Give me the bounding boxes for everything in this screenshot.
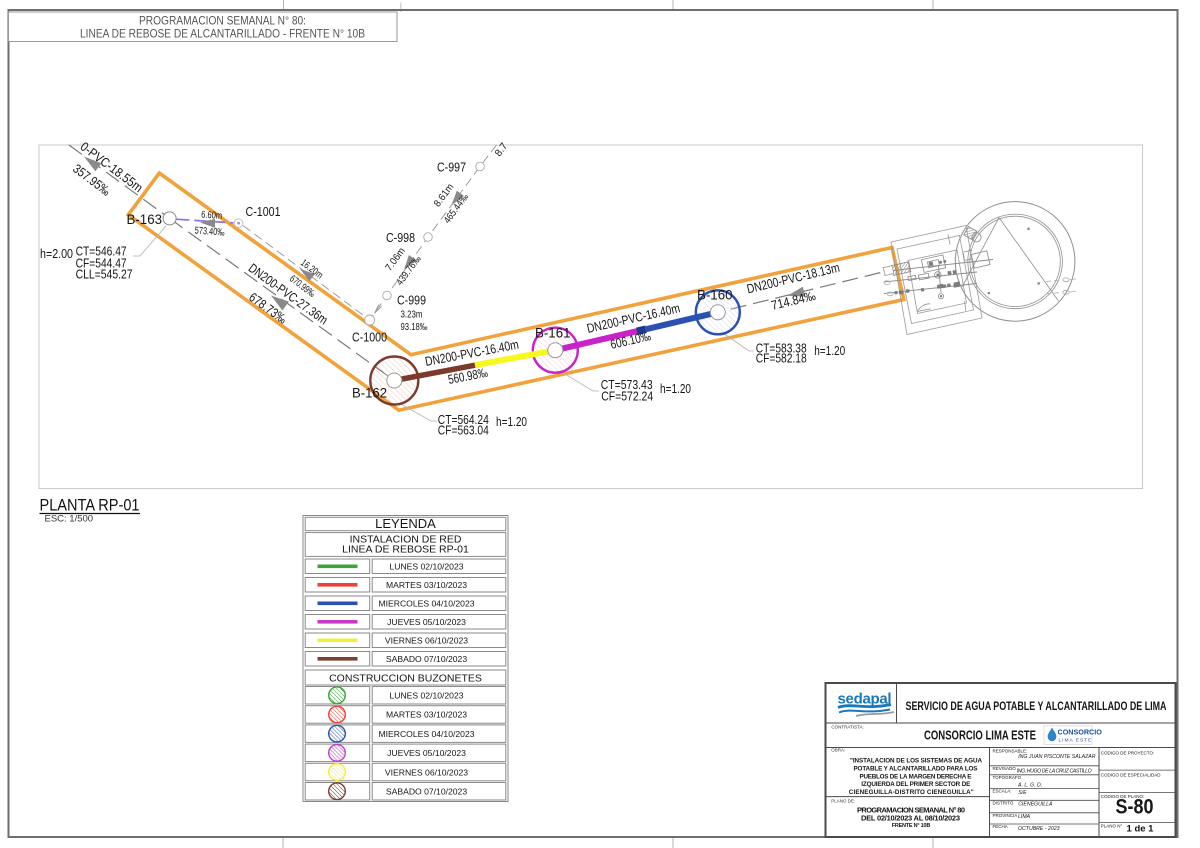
svg-text:93.18‰: 93.18‰ — [401, 322, 428, 333]
svg-text:LIMA: LIMA — [1018, 814, 1031, 820]
svg-text:ING JUAN PISCONTE SALAZAR: ING JUAN PISCONTE SALAZAR — [1018, 754, 1096, 760]
svg-text:IZQUIERDA DEL PRIMER SECTOR DE: IZQUIERDA DEL PRIMER SECTOR DE — [861, 781, 970, 788]
svg-text:LEYENDA: LEYENDA — [375, 516, 436, 531]
svg-text:CF=572.24: CF=572.24 — [601, 388, 653, 403]
svg-text:TOPOGRAFO: TOPOGRAFO — [993, 775, 1022, 780]
svg-text:CONSORCIO LIMA ESTE: CONSORCIO LIMA ESTE — [924, 727, 1036, 742]
svg-text:VIERNES 06/10/2023: VIERNES 06/10/2023 — [385, 636, 468, 646]
svg-text:CF=563.04: CF=563.04 — [438, 423, 489, 438]
svg-text:MARTES 03/10/2023: MARTES 03/10/2023 — [386, 710, 467, 720]
svg-text:FECHA: FECHA — [993, 824, 1008, 829]
svg-text:MIERCOLES 04/10/2023: MIERCOLES 04/10/2023 — [378, 729, 474, 739]
svg-text:A. L. G. D.: A. L. G. D. — [1017, 782, 1042, 788]
svg-text:S/E: S/E — [1018, 790, 1027, 796]
svg-text:MARTES 03/10/2023: MARTES 03/10/2023 — [386, 580, 467, 590]
svg-text:606.10‰: 606.10‰ — [609, 328, 652, 352]
svg-text:C-997: C-997 — [437, 160, 466, 175]
svg-text:CONSTRUCCION BUZONETES: CONSTRUCCION BUZONETES — [329, 673, 482, 685]
svg-text:PLANO N°: PLANO N° — [1101, 824, 1123, 829]
svg-text:CODIGO DE PROYECTO:: CODIGO DE PROYECTO: — [1101, 750, 1154, 755]
svg-text:CF=582.18: CF=582.18 — [756, 351, 807, 366]
svg-text:714.84‰: 714.84‰ — [770, 288, 817, 313]
svg-text:C-1001: C-1001 — [246, 204, 281, 219]
svg-text:SABADO 07/10/2023: SABADO 07/10/2023 — [386, 787, 467, 797]
svg-text:1 de 1: 1 de 1 — [1127, 823, 1155, 834]
svg-text:OBRA:: OBRA: — [831, 748, 845, 753]
svg-text:LINEA DE REBOSE DE ALCANTARILL: LINEA DE REBOSE DE ALCANTARILLADO - FREN… — [80, 27, 365, 41]
svg-text:MIERCOLES 04/10/2023: MIERCOLES 04/10/2023 — [378, 599, 474, 609]
svg-text:OCTUBRE - 2023: OCTUBRE - 2023 — [1018, 826, 1060, 832]
svg-text:CIENEGUILLA-DISTRITO CIENEGUIL: CIENEGUILLA-DISTRITO CIENEGUILLA" — [849, 789, 974, 796]
svg-text:RESPONSABLE:: RESPONSABLE: — [993, 748, 1028, 753]
svg-text:B-162: B-162 — [352, 385, 387, 401]
svg-text:CONSORCIO: CONSORCIO — [1058, 728, 1103, 737]
svg-text:573.40‰: 573.40‰ — [194, 226, 225, 239]
svg-text:ESCALA:: ESCALA: — [993, 789, 1012, 794]
svg-text:C-1000: C-1000 — [352, 330, 387, 345]
svg-text:"INSTALACION DE LOS SISTEMAS D: "INSTALACION DE LOS SISTEMAS DE AGUA — [850, 758, 982, 765]
svg-text:ING. HUGO DE LA CRUZ CASTILLO: ING. HUGO DE LA CRUZ CASTILLO — [1017, 768, 1092, 774]
svg-text:PLANO DE:: PLANO DE: — [831, 798, 855, 803]
svg-text:DN200-PVC-18.13m: DN200-PVC-18.13m — [745, 260, 841, 297]
svg-text:C-999: C-999 — [397, 292, 426, 307]
svg-text:CLL=545.27: CLL=545.27 — [76, 267, 133, 282]
svg-text:h=2.00: h=2.00 — [40, 246, 73, 261]
svg-text:JUEVES 05/10/2023: JUEVES 05/10/2023 — [387, 748, 466, 758]
svg-text:JUEVES 05/10/2023: JUEVES 05/10/2023 — [387, 617, 466, 627]
svg-text:PROGRAMACION SEMANAL N° 80:: PROGRAMACION SEMANAL N° 80: — [139, 14, 306, 28]
svg-text:LUNES 02/10/2023: LUNES 02/10/2023 — [389, 691, 463, 701]
svg-text:B-163: B-163 — [127, 211, 163, 227]
svg-text:LINEA DE REBOSE RP-01: LINEA DE REBOSE RP-01 — [342, 544, 469, 556]
svg-text:ESC: 1/500: ESC: 1/500 — [45, 514, 94, 525]
svg-text:3.23m: 3.23m — [401, 310, 423, 321]
svg-text:6.60m: 6.60m — [201, 210, 223, 222]
svg-text:SERVICIO DE AGUA POTABLE Y ALC: SERVICIO DE AGUA POTABLE Y ALCANTARILLAD… — [906, 699, 1167, 713]
svg-text:CIENEGUILLA: CIENEGUILLA — [1018, 801, 1053, 807]
svg-text:h=1.20: h=1.20 — [496, 414, 527, 429]
svg-text:DEL 02/10/2023 AL 08/10/2023: DEL 02/10/2023 AL 08/10/2023 — [861, 813, 960, 822]
svg-text:S-80: S-80 — [1116, 796, 1154, 819]
svg-text:FRENTE N° 10B: FRENTE N° 10B — [892, 823, 931, 829]
svg-text:LUNES 02/10/2023: LUNES 02/10/2023 — [389, 562, 463, 572]
svg-text:DISTRITO: DISTRITO — [993, 801, 1014, 806]
svg-text:VIERNES 06/10/2023: VIERNES 06/10/2023 — [385, 767, 468, 777]
svg-text:8.7: 8.7 — [493, 141, 510, 159]
svg-text:SABADO 07/10/2023: SABADO 07/10/2023 — [386, 654, 467, 664]
svg-text:PROVINCIA: PROVINCIA — [993, 813, 1018, 818]
svg-text:B-161: B-161 — [535, 324, 571, 340]
svg-text:PUEBLOS DE LA MARGEN DERECHA E: PUEBLOS DE LA MARGEN DERECHA E — [860, 773, 972, 780]
svg-text:h=1.20: h=1.20 — [660, 381, 691, 396]
svg-text:B-160: B-160 — [697, 286, 733, 302]
svg-text:C-998: C-998 — [386, 230, 415, 245]
svg-text:CODIGO DE ESPECIALIDAD: CODIGO DE ESPECIALIDAD — [1101, 773, 1162, 778]
svg-text:POTABLE Y ALCANTARILLADO PARA: POTABLE Y ALCANTARILLADO PARA LOS — [854, 765, 978, 772]
svg-text:h=1.20: h=1.20 — [814, 343, 845, 358]
svg-text:LIMA ESTE: LIMA ESTE — [1059, 738, 1093, 744]
svg-text:CONTRATISTA:: CONTRATISTA: — [831, 725, 863, 730]
svg-text:PLANTA RP-01: PLANTA RP-01 — [40, 496, 140, 515]
svg-text:REVISADO: REVISADO — [993, 766, 1017, 771]
